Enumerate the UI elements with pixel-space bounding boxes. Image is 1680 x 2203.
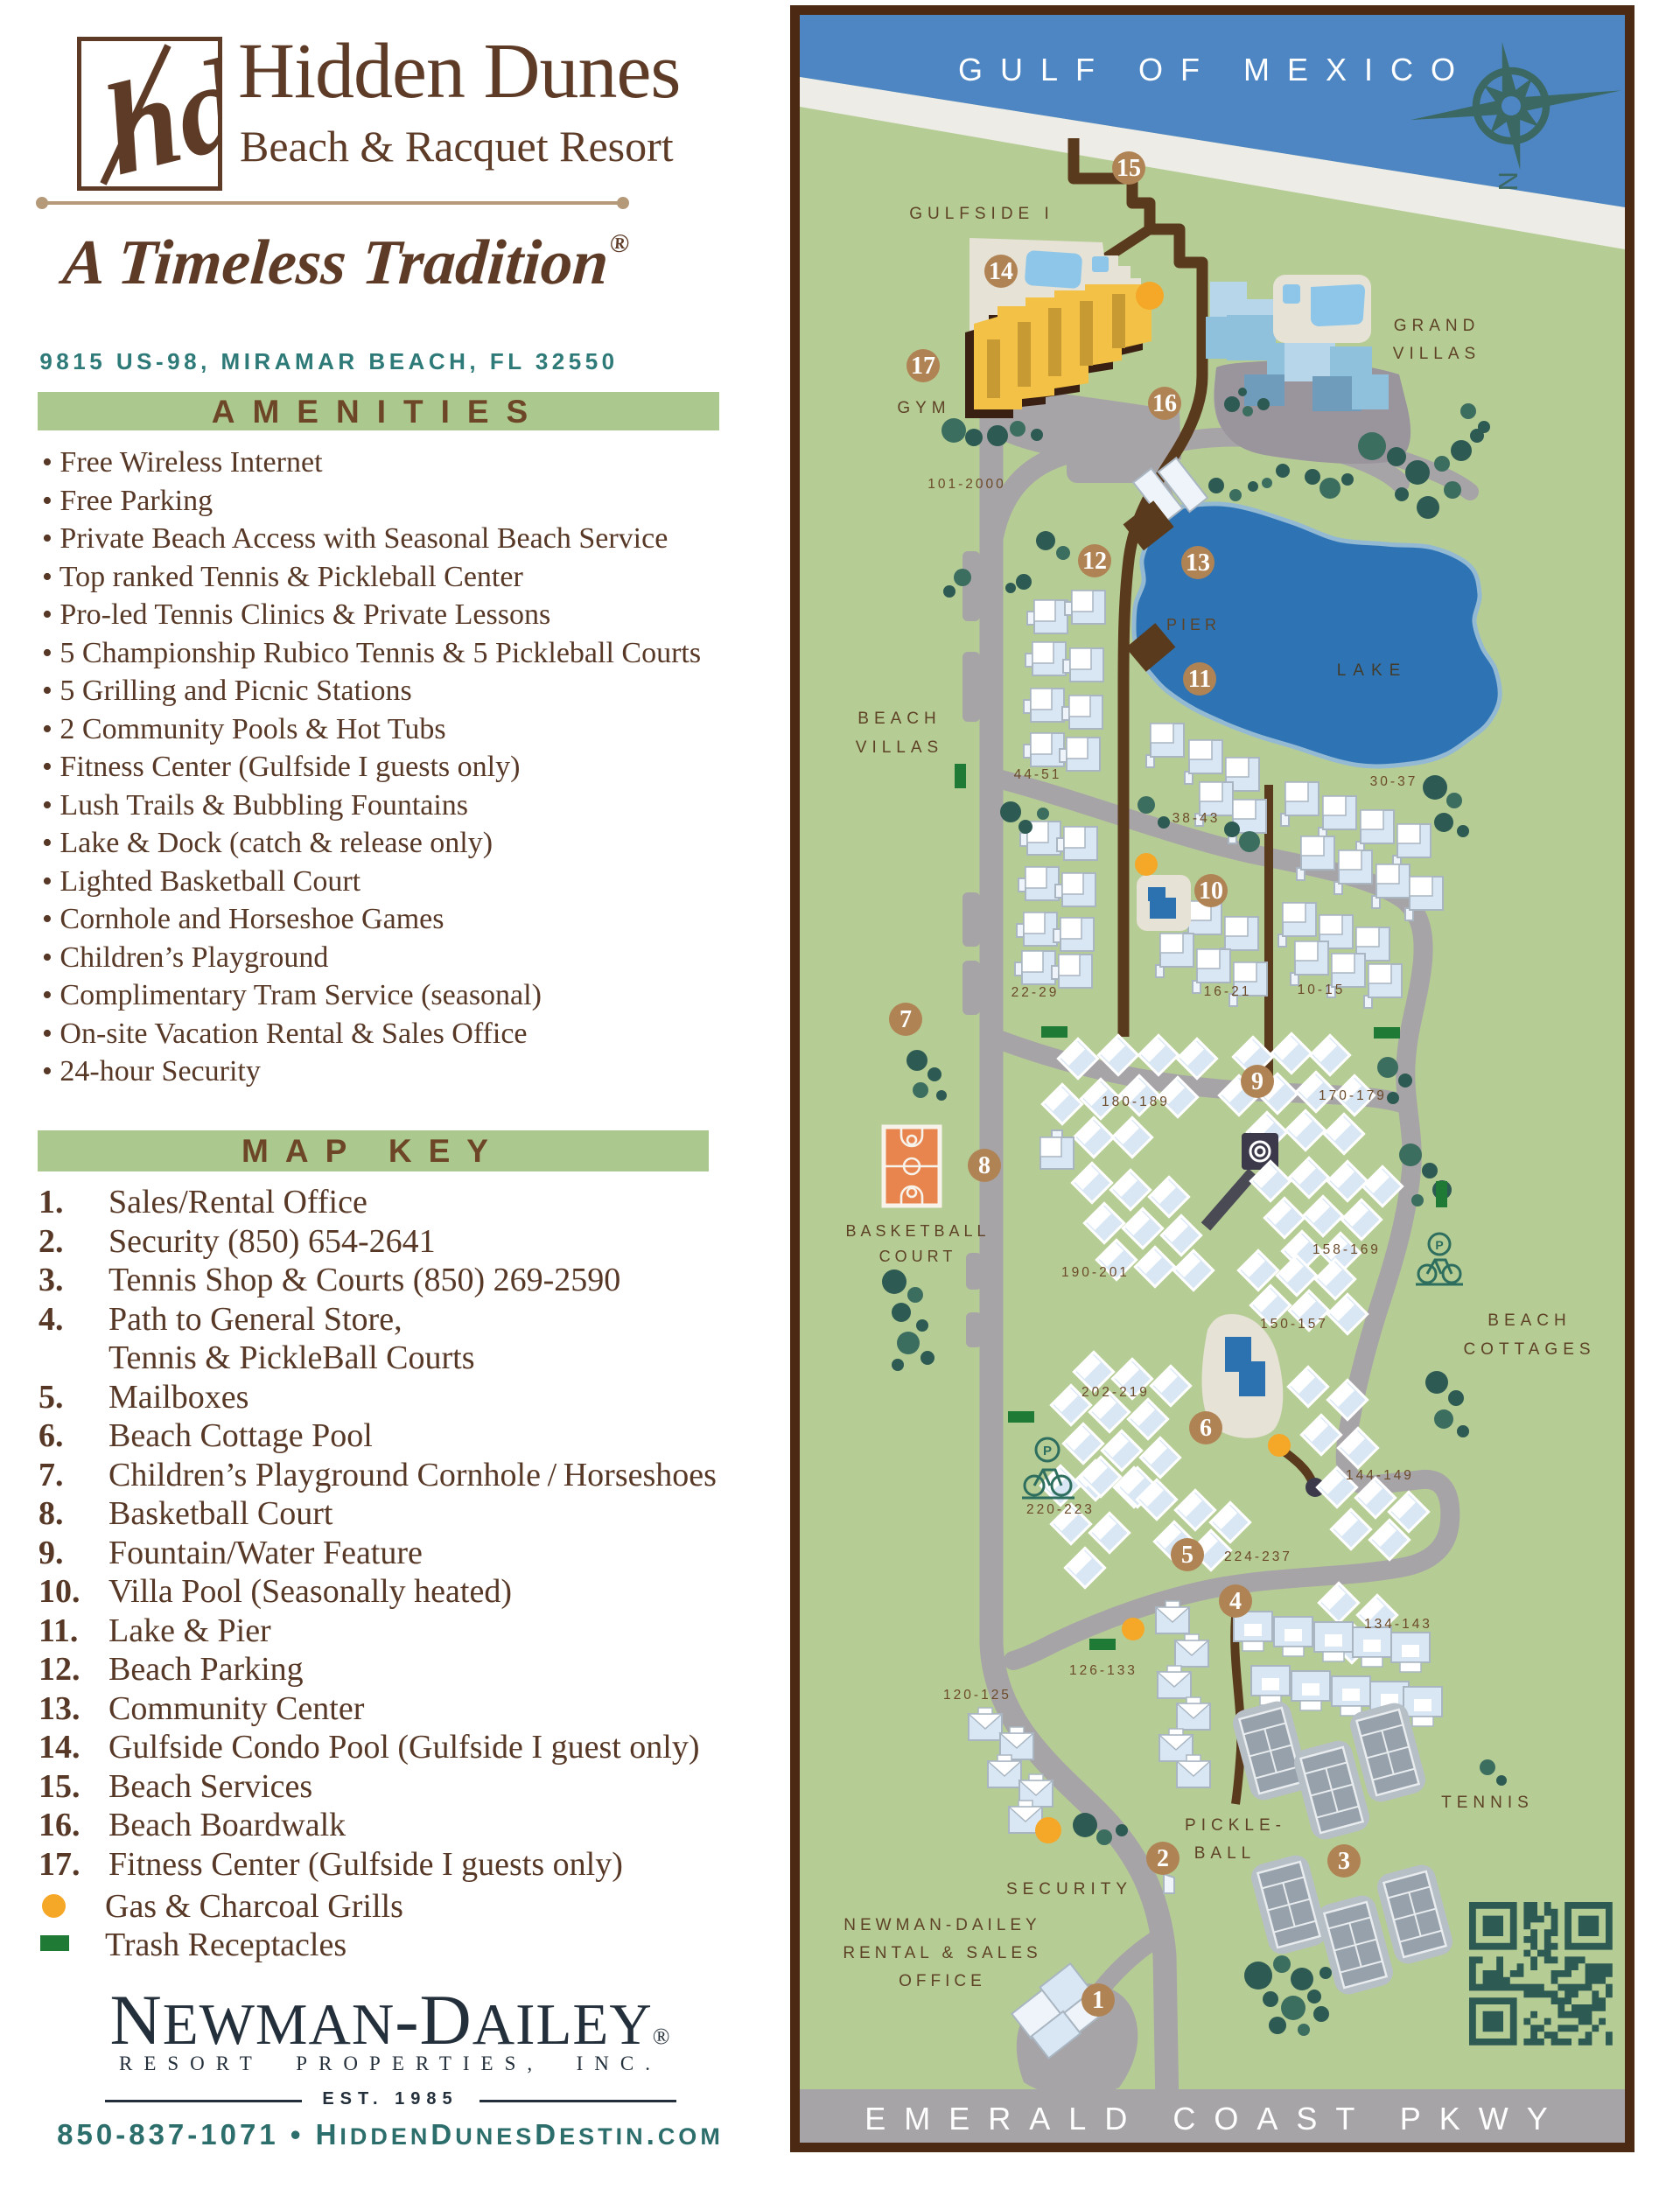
svg-text:GULF OF MEXICO: GULF OF MEXICO — [958, 52, 1473, 87]
svg-text:126-133: 126-133 — [1069, 1663, 1137, 1678]
svg-text:7: 7 — [899, 1006, 912, 1033]
svg-text:SECURITY: SECURITY — [1006, 1880, 1132, 1899]
svg-text:5: 5 — [1181, 1542, 1193, 1569]
svg-text:COURT: COURT — [879, 1248, 957, 1265]
svg-text:BALL: BALL — [1194, 1844, 1256, 1863]
svg-text:4: 4 — [1229, 1588, 1242, 1615]
svg-text:GRAND: GRAND — [1394, 317, 1480, 335]
svg-text:P: P — [1043, 1444, 1052, 1458]
svg-text:N: N — [1493, 171, 1523, 191]
svg-text:22-29: 22-29 — [1011, 985, 1060, 1000]
svg-text:13: 13 — [1186, 549, 1210, 577]
svg-text:14: 14 — [989, 258, 1013, 285]
svg-text:12: 12 — [1082, 548, 1107, 575]
svg-text:44-51: 44-51 — [1014, 767, 1062, 782]
svg-text:15: 15 — [1116, 155, 1141, 182]
svg-text:OFFICE: OFFICE — [899, 1972, 986, 1990]
svg-text:TENNIS: TENNIS — [1441, 1794, 1534, 1812]
svg-text:PIER: PIER — [1166, 616, 1221, 633]
svg-text:9: 9 — [1251, 1068, 1263, 1095]
svg-text:BEACH: BEACH — [1487, 1311, 1571, 1330]
svg-text:144-149: 144-149 — [1346, 1468, 1414, 1483]
svg-text:VILLAS: VILLAS — [856, 738, 943, 757]
svg-text:1: 1 — [1092, 1987, 1104, 2014]
svg-text:11: 11 — [1188, 666, 1211, 693]
svg-text:GULFSIDE I: GULFSIDE I — [909, 205, 1054, 223]
svg-text:134-143: 134-143 — [1364, 1617, 1432, 1632]
svg-text:220-223: 220-223 — [1026, 1502, 1095, 1517]
svg-text:16-21: 16-21 — [1204, 984, 1252, 999]
svg-text:2: 2 — [1157, 1845, 1169, 1872]
svg-text:10: 10 — [1199, 878, 1223, 905]
svg-text:NEWMAN-DAILEY: NEWMAN-DAILEY — [843, 1916, 1040, 1934]
svg-text:38-43: 38-43 — [1172, 811, 1221, 826]
svg-text:224-237: 224-237 — [1224, 1549, 1292, 1564]
svg-text:120-125: 120-125 — [943, 1688, 1011, 1703]
svg-text:GYM: GYM — [897, 399, 950, 417]
svg-text:RENTAL & SALES: RENTAL & SALES — [843, 1944, 1041, 1962]
svg-text:30-37: 30-37 — [1370, 774, 1418, 789]
svg-text:BASKETBALL: BASKETBALL — [845, 1222, 990, 1240]
svg-text:8: 8 — [978, 1152, 990, 1179]
svg-text:VILLAS: VILLAS — [1393, 345, 1480, 363]
svg-text:101-2000: 101-2000 — [927, 477, 1006, 492]
svg-text:3: 3 — [1338, 1848, 1350, 1875]
svg-text:LAKE: LAKE — [1337, 661, 1408, 680]
svg-text:190-201: 190-201 — [1061, 1265, 1130, 1280]
svg-text:P: P — [1435, 1238, 1443, 1252]
svg-text:6: 6 — [1200, 1415, 1212, 1442]
svg-text:150-157: 150-157 — [1260, 1317, 1328, 1332]
svg-text:BEACH: BEACH — [857, 710, 941, 728]
svg-text:10-15: 10-15 — [1298, 983, 1346, 997]
svg-text:158-169: 158-169 — [1312, 1242, 1381, 1257]
svg-text:202-219: 202-219 — [1081, 1385, 1150, 1400]
svg-text:180-189: 180-189 — [1102, 1095, 1170, 1109]
svg-text:16: 16 — [1152, 390, 1177, 417]
svg-text:17: 17 — [911, 353, 935, 380]
svg-text:EMERALD COAST PKWY: EMERALD COAST PKWY — [864, 2101, 1565, 2137]
svg-text:170-179: 170-179 — [1319, 1088, 1387, 1103]
svg-text:PICKLE-: PICKLE- — [1185, 1816, 1286, 1835]
svg-text:COTTAGES: COTTAGES — [1463, 1340, 1595, 1359]
